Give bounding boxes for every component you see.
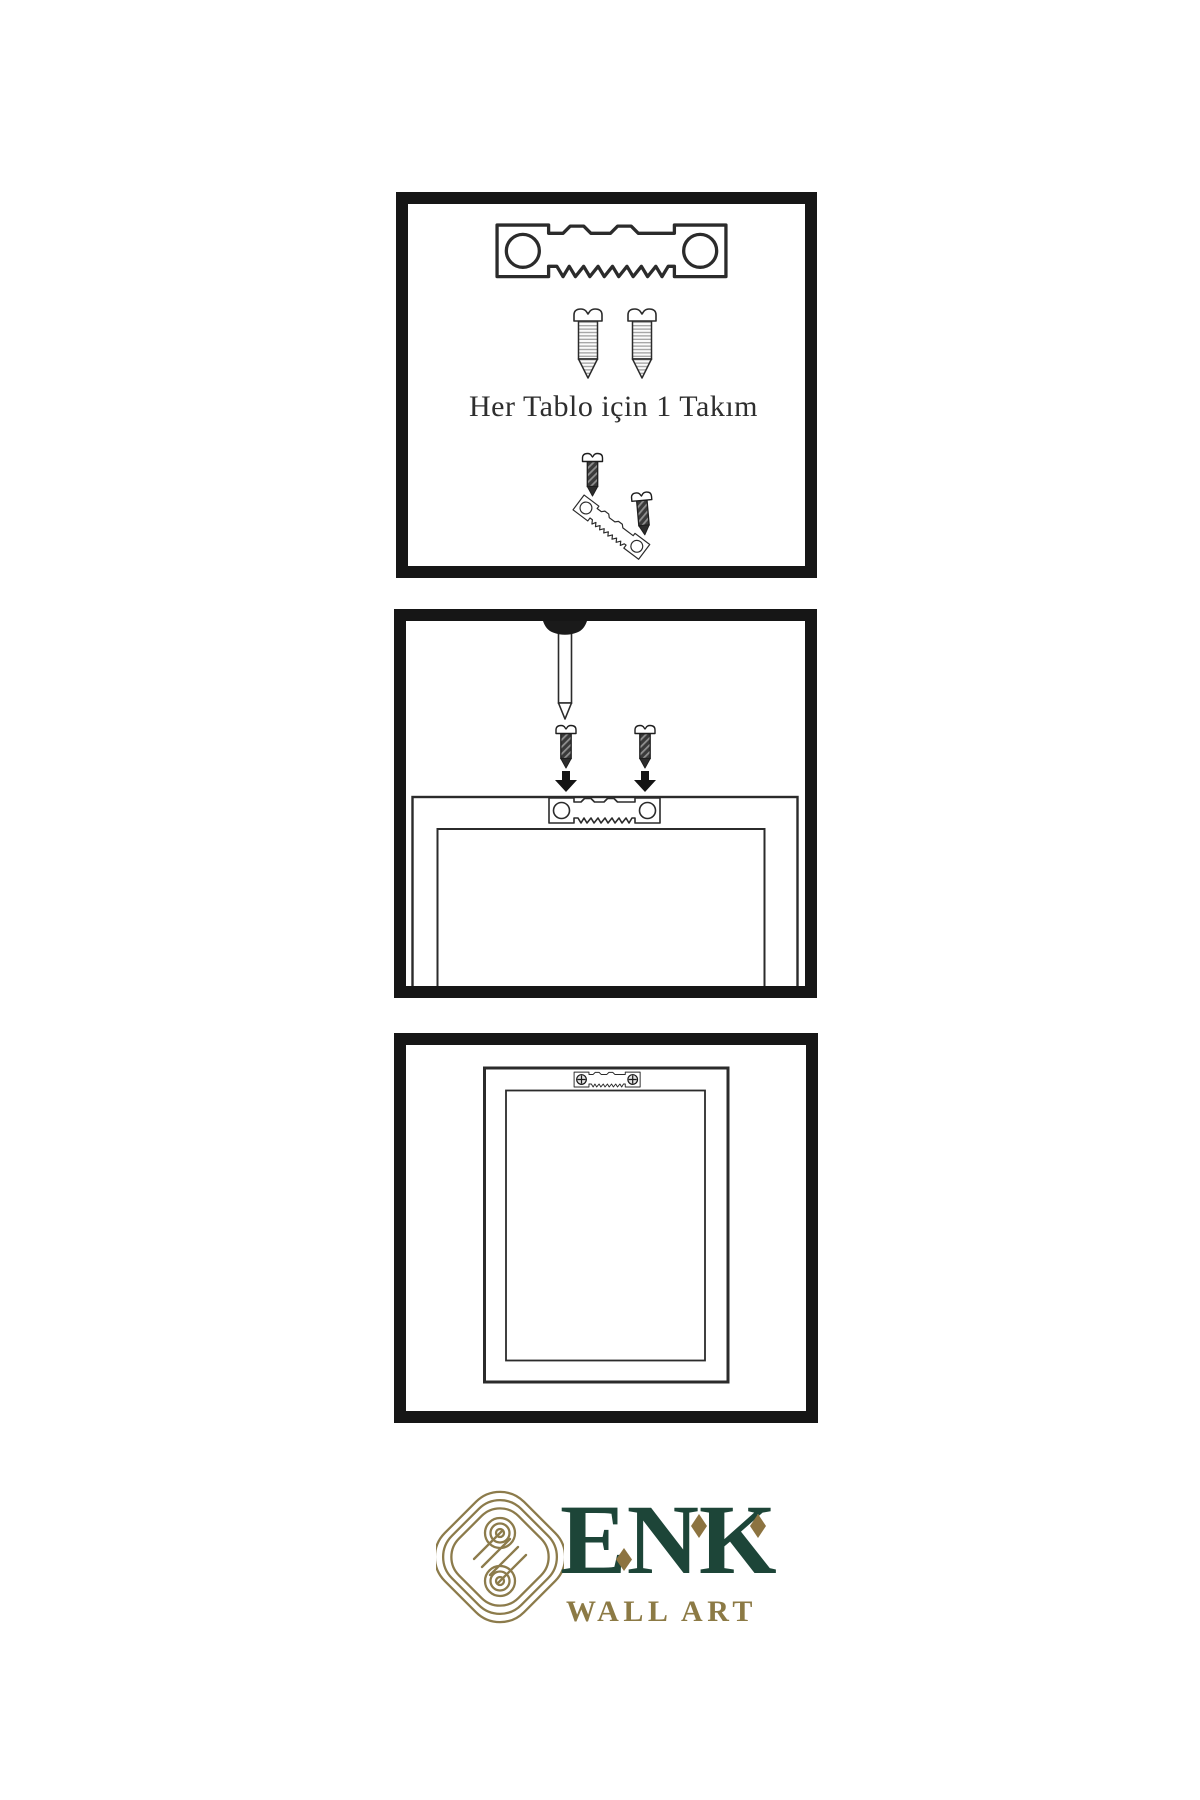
sawtooth-hanger-icon — [497, 225, 726, 277]
kit-caption: Her Tablo için 1 Takım — [408, 390, 805, 424]
screw-into-hanger-icon — [573, 454, 655, 560]
frame-back-icon — [413, 797, 798, 986]
brand-name: ENK — [560, 1490, 777, 1590]
step-1-panel: Her Tablo için 1 Takım — [396, 192, 817, 578]
step-2-panel — [394, 609, 817, 998]
hanging-frame-icon — [485, 1068, 729, 1382]
screws-icon — [556, 726, 655, 769]
brand-tagline: WALL ART — [566, 1595, 757, 1629]
screws-icon — [574, 309, 656, 378]
hardware-kit-illustration — [408, 204, 805, 566]
wall-nail-icon — [543, 621, 587, 719]
mounting-illustration — [406, 621, 805, 986]
instruction-sheet: Her Tablo için 1 Takım — [0, 0, 1200, 1800]
mounted-hanger-icon — [574, 1072, 640, 1087]
down-arrows-icon — [555, 771, 656, 792]
hanging-frame-illustration — [406, 1045, 806, 1411]
step-3-panel — [394, 1033, 818, 1423]
sawtooth-hanger-icon — [549, 798, 660, 823]
interlocking-knot-icon — [436, 1486, 564, 1628]
